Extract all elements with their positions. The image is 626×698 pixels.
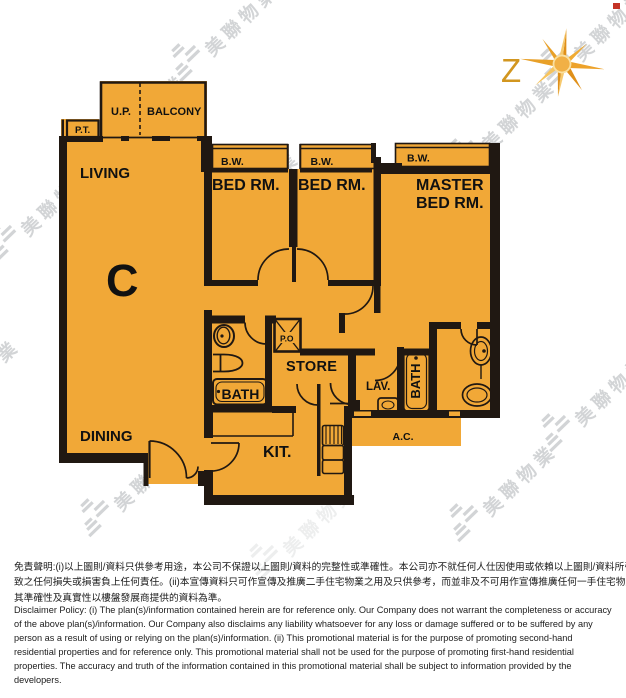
svg-text:B.W.: B.W. [221,156,244,168]
svg-text:BED RM.: BED RM. [416,195,484,212]
svg-text:P.T.: P.T. [75,125,90,136]
svg-text:BATH: BATH [222,386,260,402]
svg-text:LAV.: LAV. [366,381,390,393]
svg-text:B.W.: B.W. [407,153,430,165]
svg-text:MASTER: MASTER [416,177,484,194]
svg-text:Z: Z [501,52,521,89]
svg-text:BALCONY: BALCONY [147,106,202,118]
svg-text:C: C [106,255,139,306]
svg-text:KIT.: KIT. [263,444,291,461]
svg-text:B.W.: B.W. [311,156,334,168]
svg-text:BED RM.: BED RM. [298,177,366,194]
svg-text:A.C.: A.C. [393,431,414,443]
svg-text:P.O: P.O [280,334,294,344]
svg-text:STORE: STORE [286,359,337,375]
svg-text:BATH: BATH [408,363,423,398]
svg-text:U.P.: U.P. [111,106,131,118]
svg-text:DINING: DINING [80,428,133,445]
svg-text:BED RM.: BED RM. [212,177,280,194]
svg-text:LIVING: LIVING [80,165,130,182]
